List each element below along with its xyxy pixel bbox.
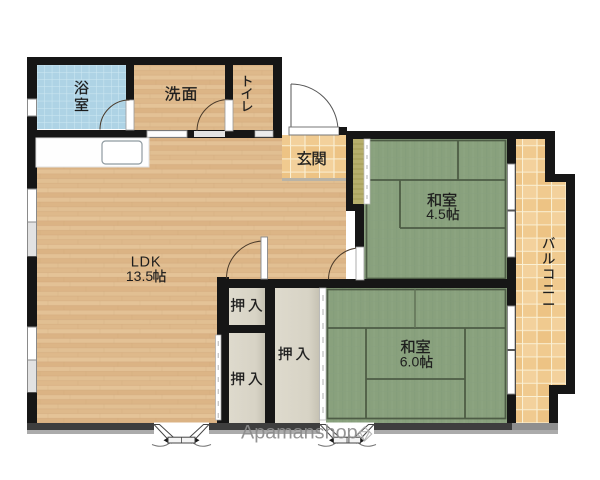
svg-text:Apamanshop: Apamanshop xyxy=(241,422,358,444)
svg-text:13.5: 13.5 xyxy=(126,268,153,284)
svg-text:4.5: 4.5 xyxy=(426,206,446,222)
svg-text:6.0: 6.0 xyxy=(400,354,420,370)
